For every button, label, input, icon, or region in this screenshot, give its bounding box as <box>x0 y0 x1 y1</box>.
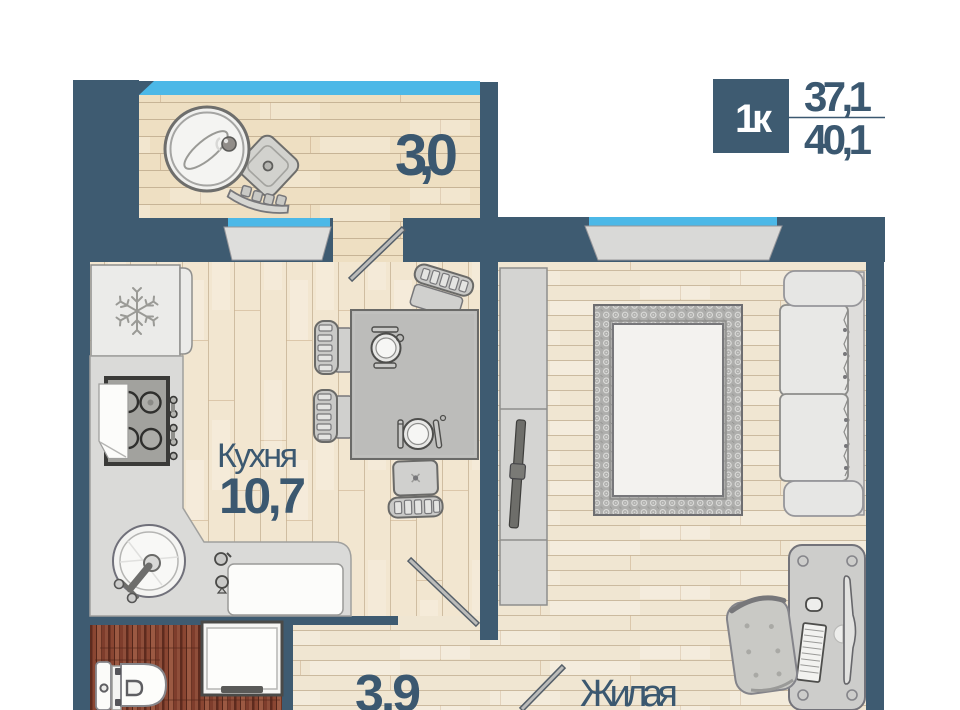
svg-text:1к: 1к <box>735 97 773 141</box>
svg-text:Жилая: Жилая <box>580 673 678 710</box>
svg-text:3,0: 3,0 <box>395 123 458 188</box>
svg-text:3,9: 3,9 <box>355 665 421 710</box>
svg-text:37,1: 37,1 <box>804 73 872 120</box>
svg-text:40,1: 40,1 <box>804 116 872 163</box>
svg-text:10,7: 10,7 <box>219 468 306 524</box>
